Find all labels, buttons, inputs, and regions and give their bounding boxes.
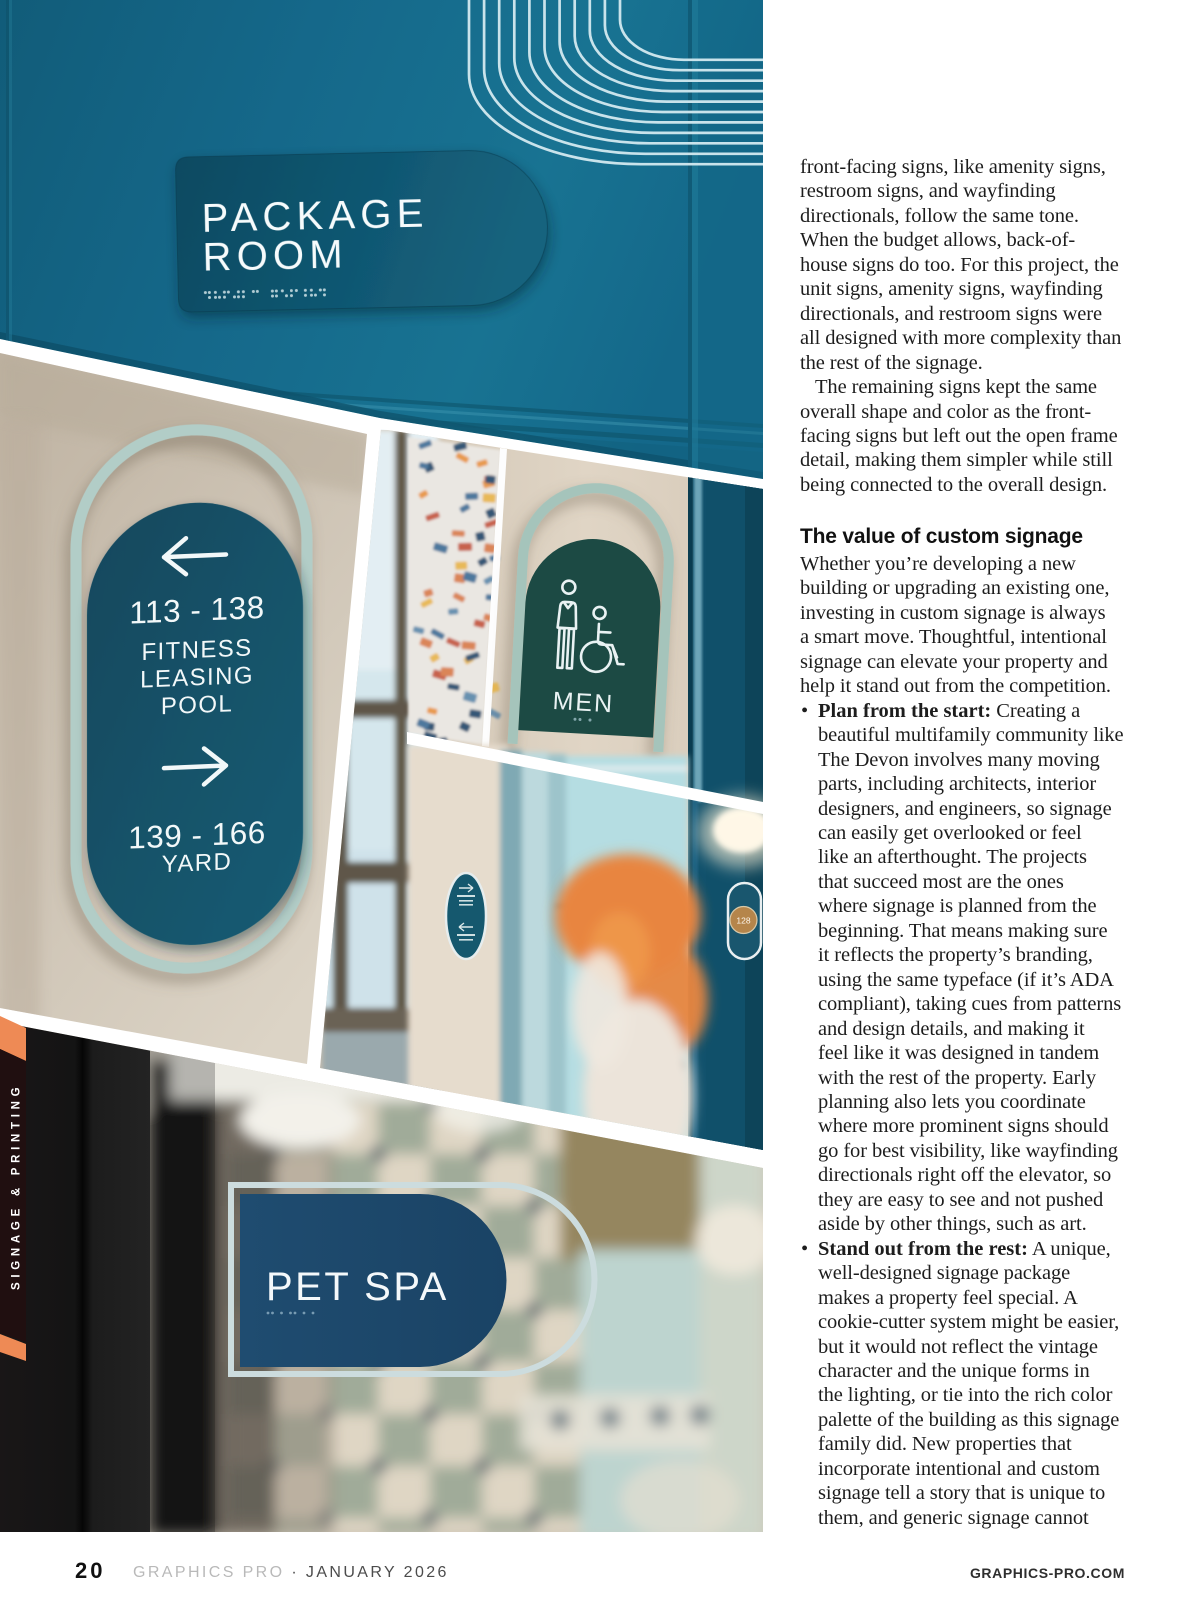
svg-text:POOL: POOL	[161, 690, 233, 720]
svg-text:113 - 138: 113 - 138	[129, 589, 264, 631]
svg-text:ROOM: ROOM	[202, 232, 348, 279]
svg-text:FITNESS: FITNESS	[141, 634, 252, 666]
svg-text:MEN: MEN	[552, 687, 615, 718]
svg-text:PET SPA: PET SPA	[266, 1265, 449, 1309]
svg-text:128: 128	[736, 916, 750, 926]
svg-text:YARD: YARD	[162, 848, 232, 878]
svg-text:SIGNAGE & PRINTING: SIGNAGE & PRINTING	[11, 1083, 23, 1290]
svg-text:LEASING: LEASING	[140, 662, 254, 694]
